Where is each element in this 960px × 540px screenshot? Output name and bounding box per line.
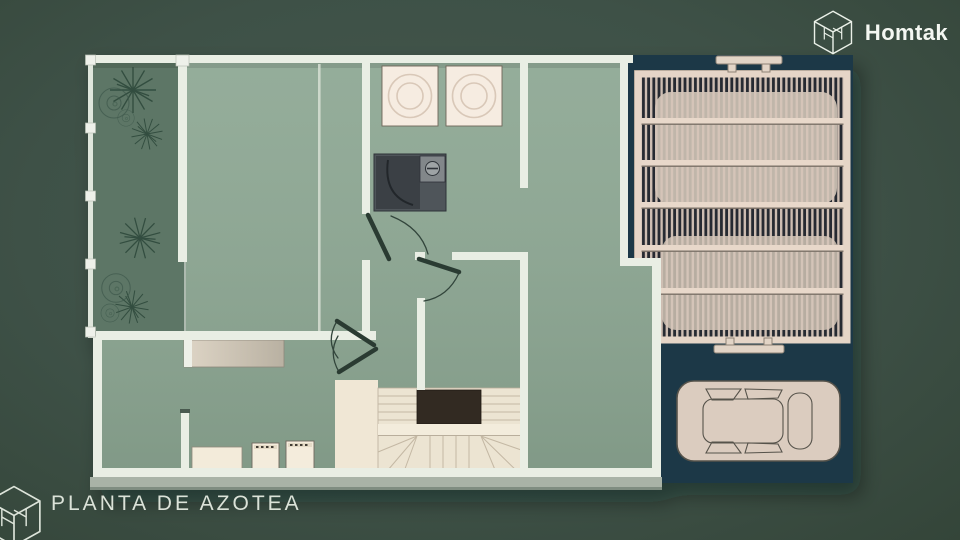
wall — [93, 468, 661, 477]
shower-icon — [374, 154, 446, 211]
wall — [362, 62, 370, 214]
wall — [417, 298, 425, 390]
brand-name: Homtak — [865, 20, 948, 46]
wall — [362, 260, 370, 336]
rooftop-plan-rendering: Homtak PLANTA DE AZOTEA — [0, 0, 960, 540]
wall — [96, 331, 376, 340]
wall — [652, 258, 661, 477]
plan-title: PLANTA DE AZOTEA — [51, 492, 302, 516]
car-icon — [677, 381, 840, 461]
stair-void — [417, 390, 481, 424]
glass-partition — [318, 64, 321, 332]
wall — [620, 62, 628, 266]
wall — [520, 253, 528, 477]
wall — [88, 55, 633, 63]
floor-plan-canvas — [0, 0, 960, 540]
wall — [178, 62, 187, 262]
plan-title-block: PLANTA DE AZOTEA — [0, 482, 302, 540]
wall — [520, 62, 528, 188]
wall — [181, 412, 189, 468]
stairs-icon — [378, 388, 527, 477]
wall — [93, 336, 102, 477]
homtak-cube-icon — [0, 482, 45, 540]
brand-logo: Homtak — [810, 8, 948, 58]
floor-plan — [86, 55, 854, 490]
skylight-icon — [446, 66, 502, 126]
terrace-floor — [335, 380, 378, 477]
skylight-icon — [382, 66, 438, 126]
wall — [452, 252, 528, 260]
bench — [184, 340, 284, 367]
pergola — [635, 71, 850, 343]
homtak-cube-icon — [810, 8, 856, 58]
